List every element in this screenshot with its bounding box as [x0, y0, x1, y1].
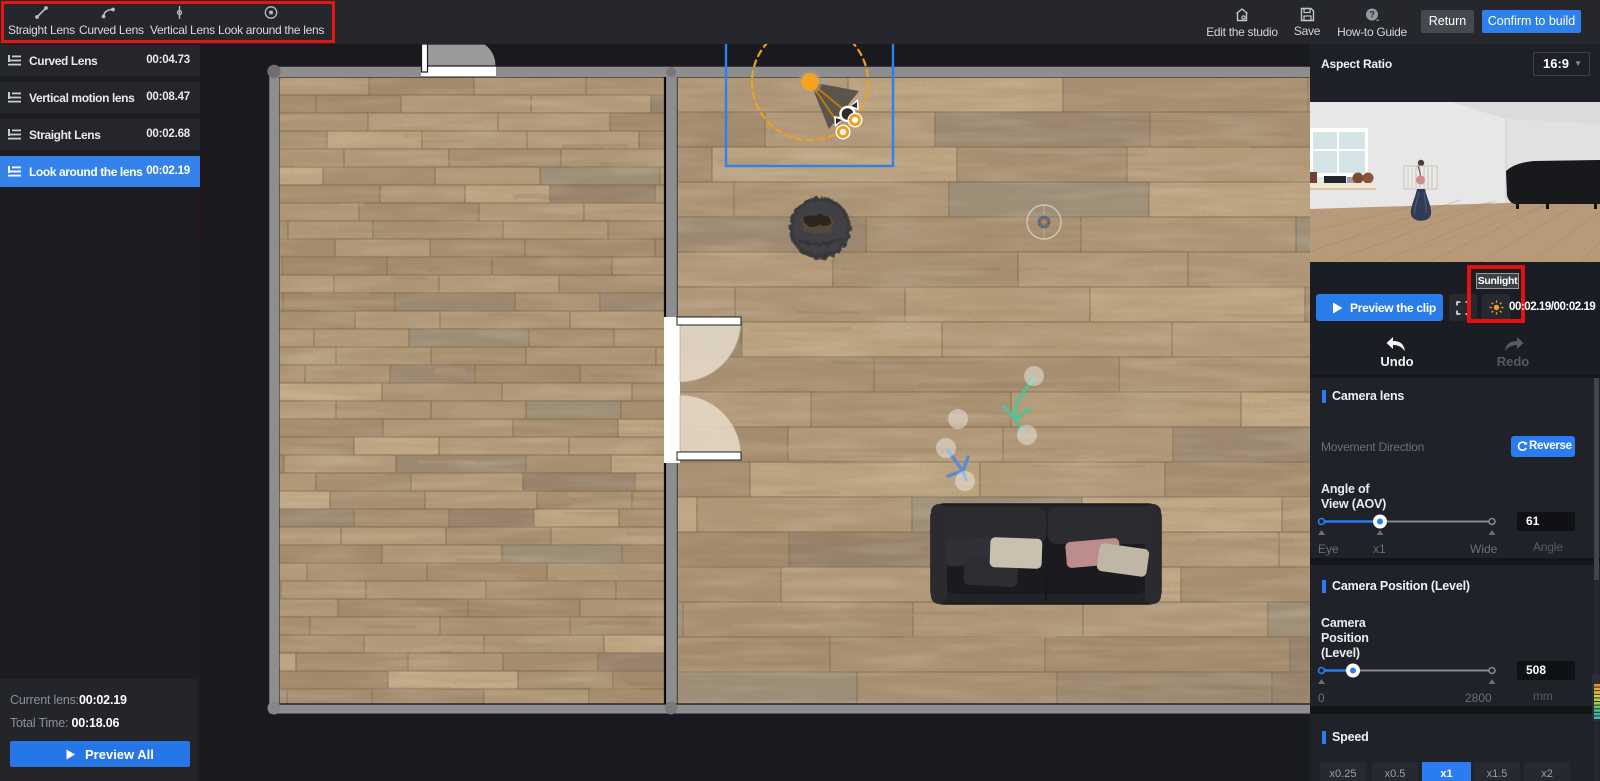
svg-text:0: 0 [1318, 691, 1325, 705]
svg-text:Wide: Wide [1470, 542, 1498, 556]
svg-text:?: ? [1369, 10, 1374, 20]
svg-text:x1: x1 [1373, 542, 1386, 556]
svg-text:2800: 2800 [1465, 691, 1492, 705]
svg-text:Eye: Eye [1318, 542, 1339, 556]
